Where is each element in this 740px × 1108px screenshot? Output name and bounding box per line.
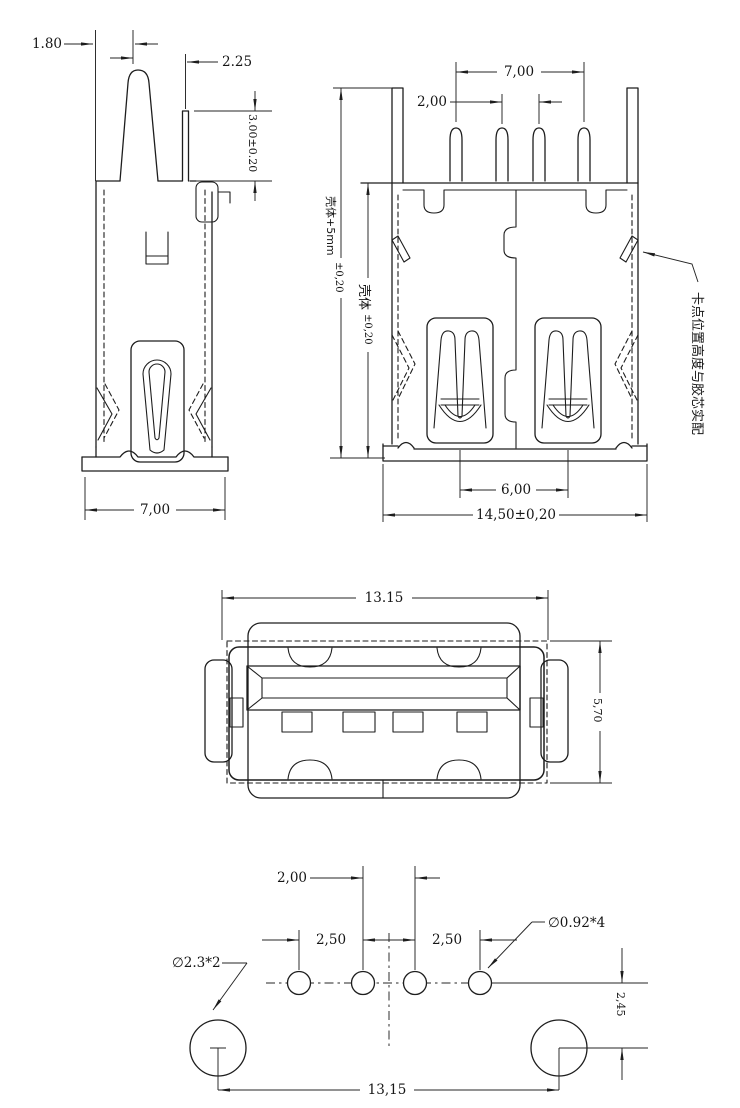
dim-5-70: 5,70 [591, 698, 604, 723]
contact-pads [282, 712, 487, 732]
left-latch [392, 236, 410, 262]
note-latch-fit: 卡点位置高度与胶芯实配 [689, 292, 705, 435]
dim-shell-plus-5mm-tol: ±0,20 [333, 262, 344, 293]
top-bumps [288, 648, 481, 667]
solder-tail [183, 111, 189, 181]
solder-pins [450, 128, 590, 181]
left-mount-tab [205, 660, 232, 762]
shell-window [146, 232, 168, 264]
dim-shell: 壳体 [356, 284, 371, 310]
dim-3-00: 3.00±0.20 [246, 114, 259, 172]
pcb-footprint: 2,00 2,50 2,50 ∅0.92*4 ∅2.3*2 2,45 [172, 866, 648, 1098]
retention-pin-outline [120, 70, 158, 181]
shell-hidden-edge [227, 641, 547, 783]
dim-2-00-rear-group: 2,00 [417, 94, 562, 124]
tongue [247, 666, 520, 710]
dim-13-15-fp: 13,15 [368, 1082, 407, 1098]
dim-13-15-front-group: 13.15 [222, 590, 548, 640]
right-crimp [196, 388, 211, 440]
center-seam [504, 190, 516, 448]
dim-2-45: 2,45 [614, 992, 627, 1017]
latch-note-group: 卡点位置高度与胶芯实配 [643, 252, 705, 435]
dim-shell-plus-5mm: 壳体+5mm [324, 196, 338, 256]
rear-base [383, 443, 647, 462]
dim-shell-outer-group: 壳体+5mm ±0,20 [324, 88, 392, 458]
dim-2-25: 2.25 [222, 54, 252, 70]
label-small-holes: ∅0.92*4 [548, 915, 605, 931]
tail-holder-tab [196, 182, 218, 222]
side-view: 1.80 2.25 3.00±0.20 7,00 [32, 30, 272, 520]
dim-7-00-rear-group: 7,00 [456, 62, 584, 122]
right-mount-tab [541, 660, 568, 762]
dim-2-00-rear: 2,00 [417, 94, 447, 110]
dim-2-50-right: 2,50 [432, 932, 462, 948]
small-hole-callout: ∅0.92*4 [488, 915, 605, 968]
dim-2-50-groups: 2,50 2,50 [262, 932, 517, 948]
fork-contact [131, 341, 184, 462]
label-big-holes: ∅2.3*2 [172, 955, 221, 971]
dim-2-50-left: 2,50 [316, 932, 346, 948]
right-latch [620, 236, 638, 262]
dim-shell-tol: ±0,20 [362, 314, 373, 345]
dim-1-80: 1.80 [32, 36, 62, 52]
rear-view: 7,00 2,00 壳体+5mm ±0,20 壳体 ±0,20 [324, 62, 705, 523]
dim-2-00-fp-group: 2,00 [277, 870, 440, 886]
big-hole-callout: ∅2.3*2 [172, 955, 247, 1010]
dim-14-50: 14,50±0,20 [476, 507, 556, 523]
pin-hole-1 [288, 972, 311, 995]
dim-13-15-fp-group: 13,15 [218, 1082, 559, 1098]
dim-6-00-group: 6,00 [460, 450, 568, 498]
shell-front [229, 647, 544, 780]
dim-7-00-side: 7,00 [140, 502, 170, 518]
bottom-bumps [288, 760, 481, 779]
pin-hole-3 [404, 972, 427, 995]
dim-2-00-fp: 2,00 [277, 870, 307, 886]
front-view: 13.15 5,70 [205, 590, 612, 798]
base-feet [82, 447, 228, 471]
dim-7-00-rear: 7,00 [504, 64, 534, 80]
dim-7-00-side-group: 7,00 [85, 477, 225, 520]
dim-2-45-group: 2,45 [614, 948, 627, 1080]
dim-3-00-group: 3.00±0.20 [194, 91, 272, 201]
dim-shell-inner-group: 壳体 ±0,20 [356, 183, 373, 458]
dim-13-15-front: 13.15 [365, 590, 404, 606]
rear-fork-contact [427, 318, 493, 443]
dim-6-00: 6,00 [501, 482, 531, 498]
pin-hole-2 [352, 972, 375, 995]
dim-2-25-group: 2.25 [186, 54, 253, 109]
dim-1-80-group: 1.80 [32, 30, 158, 181]
usb-connector-technical-drawing: 1.80 2.25 3.00±0.20 7,00 [0, 0, 740, 1108]
pin-hole-4 [469, 972, 492, 995]
